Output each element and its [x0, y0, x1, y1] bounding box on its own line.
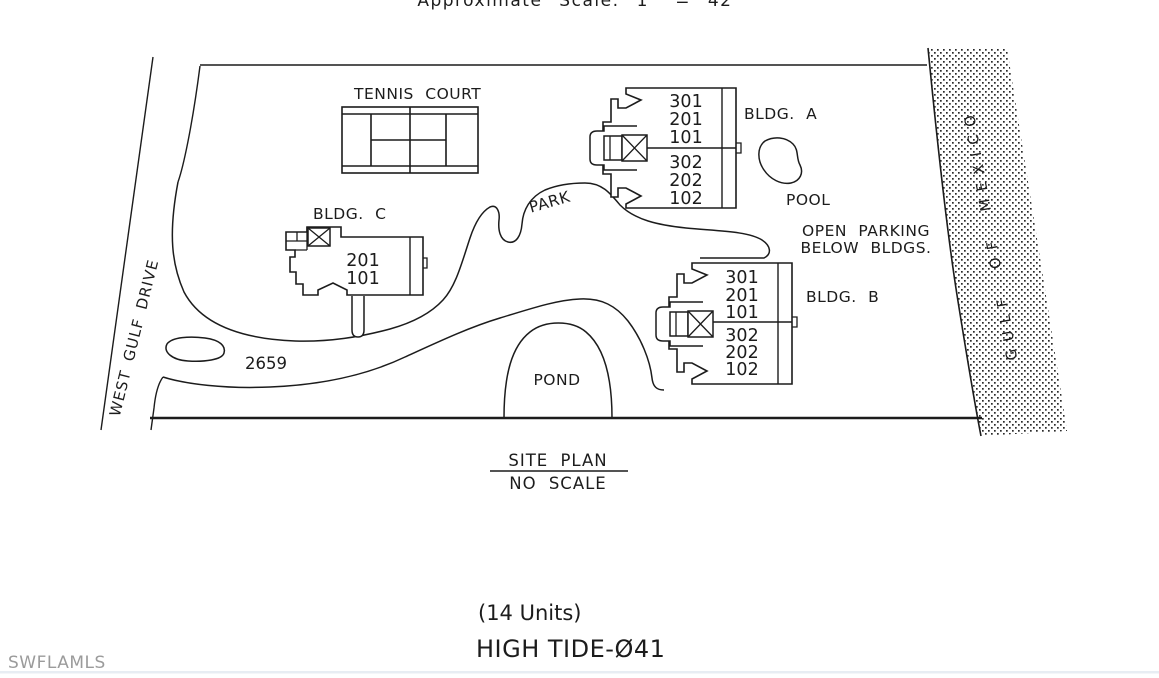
address-number: 2659: [245, 354, 287, 373]
unit-number: 301: [669, 92, 702, 112]
pond: POND: [504, 323, 612, 418]
unit-number: 102: [725, 360, 758, 380]
pond-label: POND: [533, 371, 580, 389]
drawing-title: SITE PLAN: [508, 451, 607, 470]
title-block: SITE PLAN NO SCALE: [490, 451, 628, 493]
unit-number: 301: [725, 268, 758, 288]
unit-number: 101: [669, 128, 702, 148]
elevator-cab-icon: [670, 312, 688, 336]
open-parking-note-line2: BELOW BLDGS.: [801, 239, 932, 257]
site-plan-drawing: Approximate Scale: 1" = 42' GULF OF MEXI…: [0, 0, 1159, 678]
unit-number: 101: [725, 303, 758, 323]
unit-number: 101: [346, 269, 379, 289]
entrance-island: [166, 337, 224, 361]
elevator-cab-icon: [604, 136, 622, 160]
building-c: 201 101 BLDG. C: [286, 205, 427, 337]
driveway-south-edge: [163, 299, 664, 390]
summary-block: (14 Units) HIGH TIDE-Ø41: [476, 601, 665, 663]
unit-number: 201: [346, 251, 379, 271]
gulf-of-mexico-beach: GULF OF MEXICO: [928, 48, 1067, 436]
pool-outline: [759, 138, 802, 184]
unit-number: 102: [669, 189, 702, 209]
building-a-label: BLDG. A: [744, 105, 817, 123]
unit-count-text: (14 Units): [478, 601, 581, 625]
tennis-court-label: TENNIS COURT: [353, 85, 481, 103]
building-c-post: [352, 296, 364, 337]
unit-number: 201: [669, 110, 702, 130]
west-gulf-drive-road: WEST GULF DRIVE: [101, 57, 200, 430]
unit-number: 302: [669, 153, 702, 173]
road-inner-edge-upper: [178, 66, 200, 182]
pool-label: POOL: [786, 191, 830, 209]
tennis-court: TENNIS COURT: [342, 85, 481, 173]
park-label: PARK: [527, 188, 573, 217]
property-name-text: HIGH TIDE-Ø41: [476, 635, 665, 663]
building-c-label: BLDG. C: [313, 205, 386, 223]
site-plan-page: Approximate Scale: 1" = 42' GULF OF MEXI…: [0, 0, 1159, 678]
footer-strip: [0, 671, 1159, 674]
road-inner-edge-lower: [151, 377, 163, 430]
tennis-court-lines: [342, 107, 478, 173]
open-parking-note: OPEN PARKING BELOW BLDGS.: [801, 222, 932, 257]
unit-number: 202: [669, 171, 702, 191]
building-b: 301 201 101 302 202 102 BLDG. B: [656, 263, 879, 384]
mls-watermark: SWFLAMLS: [8, 653, 106, 673]
open-parking-note-line1: OPEN PARKING: [802, 222, 930, 240]
pool: POOL: [759, 138, 831, 209]
clipped-scale-note: Approximate Scale: 1" = 42': [417, 0, 738, 11]
drawing-scale: NO SCALE: [509, 474, 606, 493]
building-b-label: BLDG. B: [806, 288, 879, 306]
